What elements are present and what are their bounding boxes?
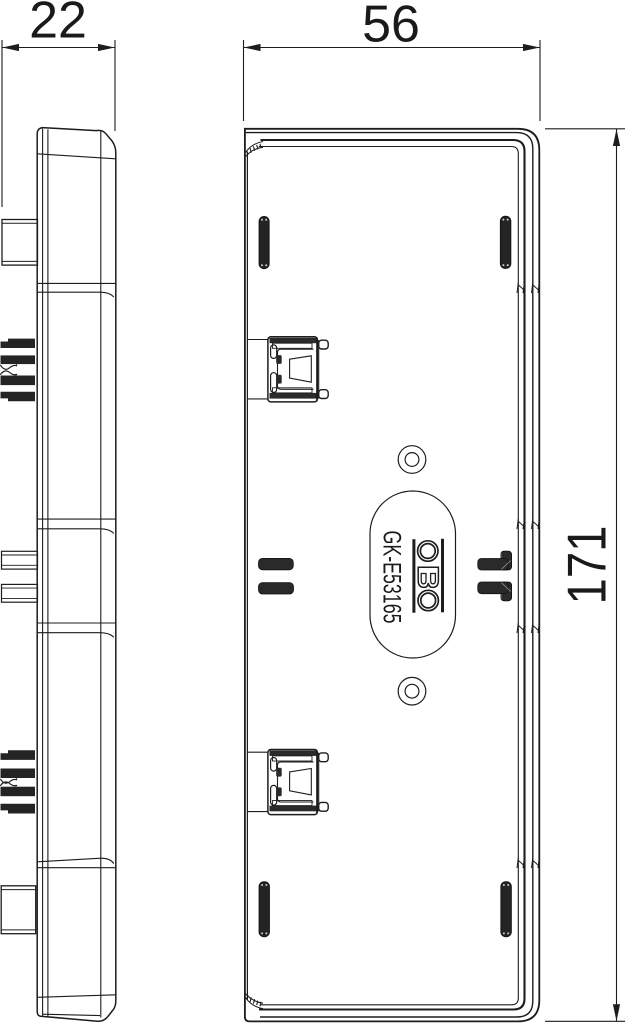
svg-text:171: 171	[556, 526, 618, 605]
svg-text:56: 56	[362, 0, 420, 54]
svg-text:GK-E53165: GK-E53165	[378, 531, 406, 624]
svg-text:22: 22	[29, 0, 87, 50]
